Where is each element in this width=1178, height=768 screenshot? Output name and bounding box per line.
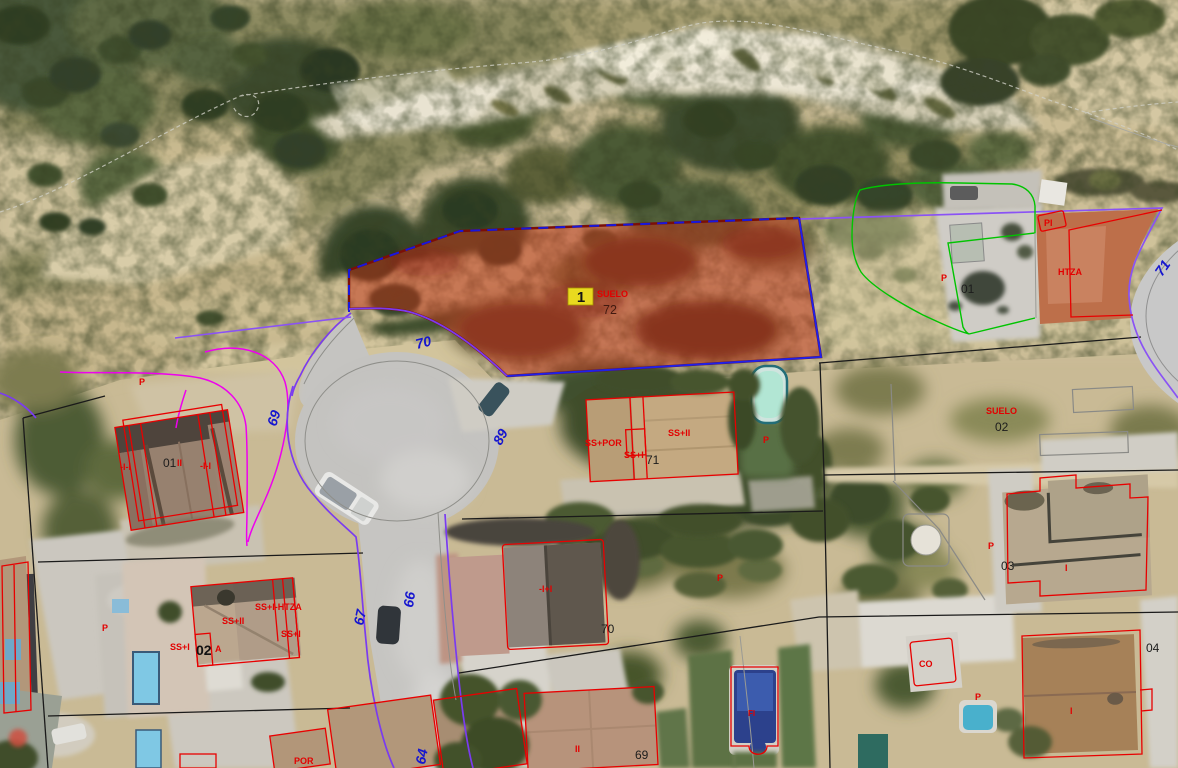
svg-text:SS+I: SS+I bbox=[624, 450, 644, 460]
svg-text:-I+I: -I+I bbox=[539, 584, 552, 594]
svg-text:P: P bbox=[102, 623, 108, 633]
svg-text:SS+I: SS+I bbox=[170, 642, 190, 652]
svg-text:P: P bbox=[988, 541, 994, 551]
svg-text:I: I bbox=[1070, 706, 1073, 716]
svg-text:69: 69 bbox=[635, 748, 649, 762]
svg-text:SS+I: SS+I bbox=[281, 629, 301, 639]
svg-text:SUELO: SUELO bbox=[597, 289, 628, 299]
svg-text:FI: FI bbox=[748, 709, 755, 718]
svg-text:03: 03 bbox=[1001, 559, 1015, 573]
svg-text:P: P bbox=[975, 692, 981, 702]
svg-text:II: II bbox=[575, 744, 580, 754]
svg-text:04: 04 bbox=[1146, 641, 1160, 655]
svg-text:CO: CO bbox=[919, 659, 933, 669]
svg-text:SS+II: SS+II bbox=[668, 428, 690, 438]
svg-text:P: P bbox=[941, 273, 947, 283]
svg-text:P: P bbox=[139, 377, 145, 387]
svg-text:PI: PI bbox=[1044, 218, 1053, 228]
svg-text:66: 66 bbox=[400, 591, 418, 609]
svg-text:1: 1 bbox=[577, 289, 585, 306]
svg-text:P: P bbox=[763, 435, 769, 445]
svg-text:SS+POR: SS+POR bbox=[585, 438, 622, 448]
svg-text:HTZA: HTZA bbox=[1058, 267, 1082, 277]
svg-text:SUELO: SUELO bbox=[986, 406, 1017, 416]
svg-text:P: P bbox=[717, 573, 723, 583]
svg-text:-I-I: -I-I bbox=[200, 461, 211, 471]
svg-text:64: 64 bbox=[412, 747, 430, 765]
svg-text:70: 70 bbox=[601, 622, 615, 636]
svg-text:SS+II: SS+II bbox=[222, 616, 244, 626]
svg-text:I: I bbox=[1065, 563, 1068, 573]
svg-text:02: 02 bbox=[995, 420, 1009, 434]
svg-text:02: 02 bbox=[196, 642, 212, 658]
svg-text:01: 01 bbox=[961, 282, 975, 296]
svg-text:SS+I-HTZA: SS+I-HTZA bbox=[255, 602, 302, 612]
svg-text:POR: POR bbox=[294, 756, 314, 766]
svg-text:71: 71 bbox=[646, 453, 660, 467]
svg-text:72: 72 bbox=[603, 303, 617, 317]
svg-text:II: II bbox=[177, 458, 182, 468]
svg-text:A: A bbox=[215, 644, 222, 654]
svg-text:-I-I: -I-I bbox=[120, 462, 131, 472]
svg-text:01: 01 bbox=[163, 456, 177, 470]
